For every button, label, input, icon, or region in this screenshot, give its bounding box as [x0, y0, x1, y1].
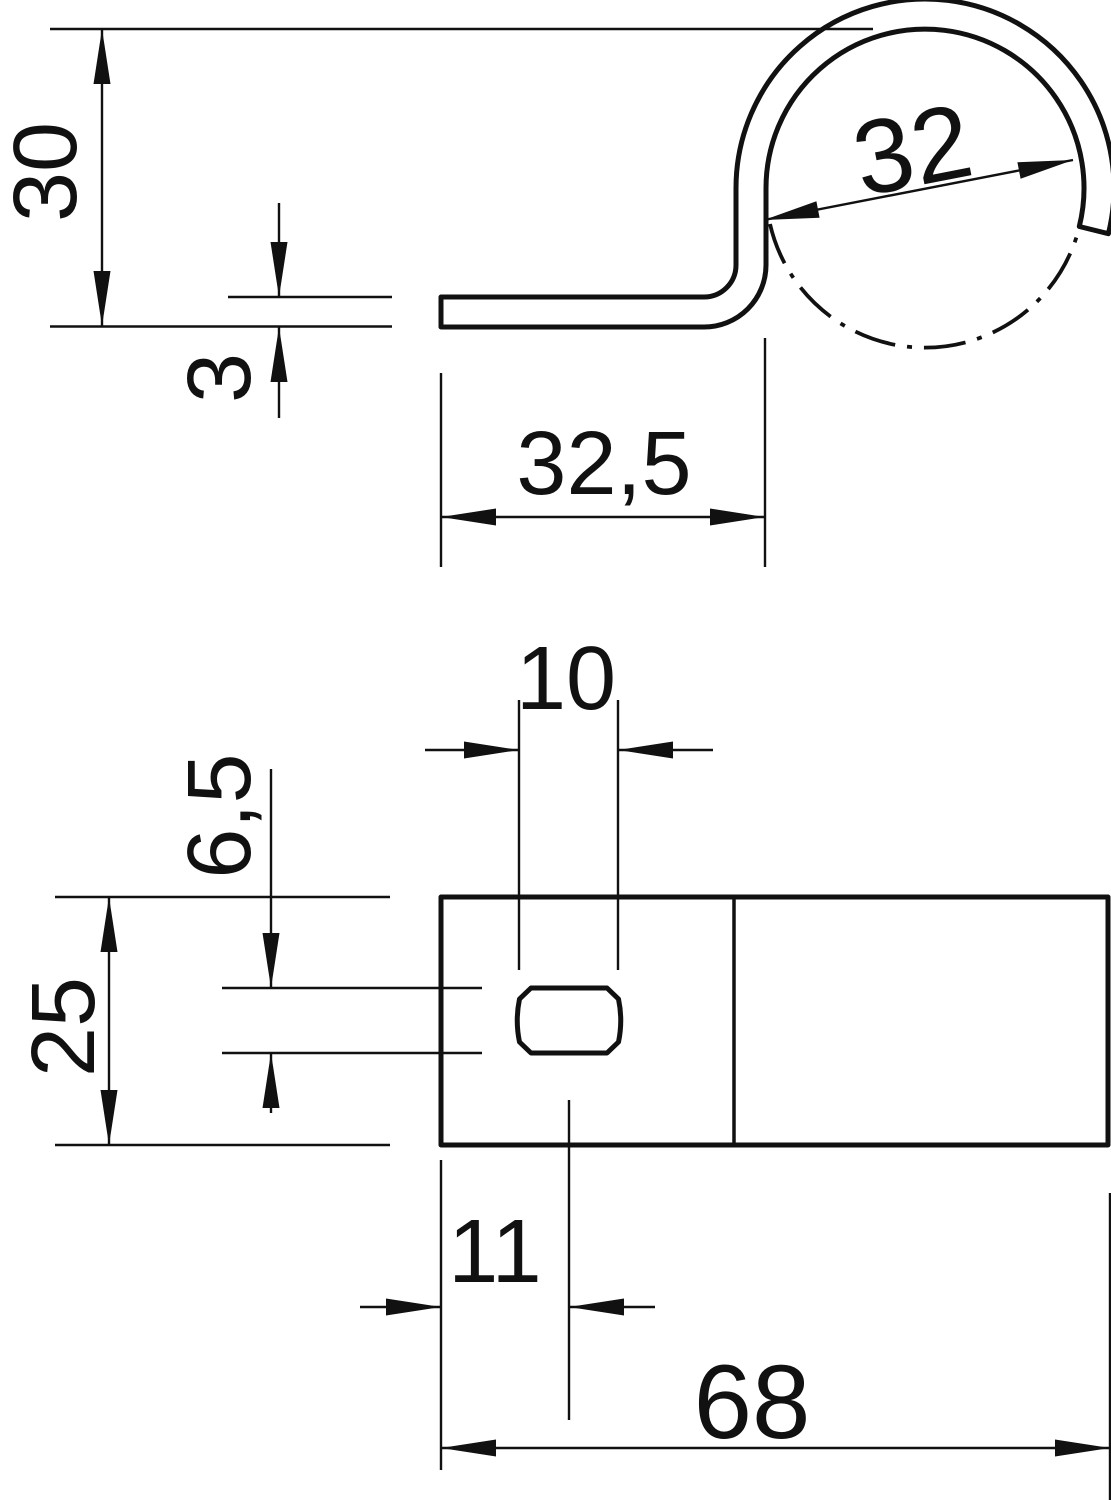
dim-label-slot-height: 6,5 [170, 753, 270, 878]
arrow-slot-width-right [618, 742, 673, 759]
technical-drawing: 30 3 32,5 32 [0, 0, 1111, 1500]
arrow-width-bottom [101, 1090, 118, 1145]
arrow-hole-offset-left [386, 1299, 441, 1316]
dim-label-thickness: 3 [170, 353, 270, 403]
dim-label-hole-offset: 11 [448, 1202, 541, 1302]
plan-outline [441, 897, 1108, 1145]
arrow-slot-width-left [464, 742, 519, 759]
dim-label-slot-width: 10 [516, 629, 616, 729]
arrow-diameter-right [1017, 160, 1073, 179]
dim-label-flat-length: 32,5 [516, 414, 691, 514]
arrow-length-right [1055, 1440, 1110, 1457]
side-view: 30 3 32,5 32 [0, 0, 1111, 567]
plan-view: 10 6,5 25 11 68 [14, 629, 1110, 1500]
dim-label-length: 68 [694, 1344, 811, 1461]
pipe-centerline-circle [770, 224, 1078, 348]
arrow-diameter-left [764, 201, 820, 220]
arrow-height-bottom [94, 271, 111, 326]
arrow-thickness-bottom [271, 327, 288, 382]
drawing-canvas: 30 3 32,5 32 [0, 0, 1111, 1500]
dim-label-height: 30 [0, 122, 96, 222]
arrow-flat-right [710, 509, 765, 526]
arrow-length-left [441, 1440, 496, 1457]
arrow-height-top [94, 29, 111, 84]
arrow-slot-height-bottom [263, 1053, 280, 1108]
slot-hole [517, 988, 621, 1053]
arrow-slot-height-top [263, 933, 280, 988]
dim-label-width: 25 [14, 977, 114, 1077]
arrow-flat-left [441, 509, 496, 526]
arrow-width-top [101, 897, 118, 952]
arrow-thickness-top [271, 242, 288, 297]
dim-label-diameter: 32 [844, 82, 981, 219]
clamp-profile-outline [441, 0, 1111, 327]
arrow-hole-offset-right [569, 1299, 624, 1316]
